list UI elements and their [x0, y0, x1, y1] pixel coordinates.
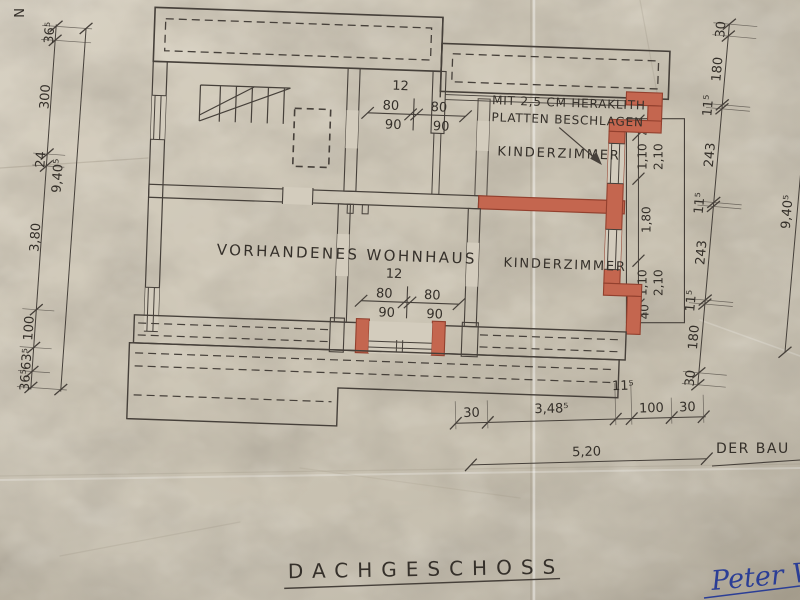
dim-left-total: 9,40⁵: [50, 158, 67, 193]
dim-right-1: 180: [709, 56, 726, 82]
dim-right-opening-180: 1,80: [639, 206, 653, 233]
dim-door-upper-90r: 90: [433, 119, 450, 135]
dim-right-2: 11⁵: [700, 94, 717, 117]
approval-label: DER BAU: [716, 441, 790, 457]
dim-left-3: 3,80: [27, 222, 44, 252]
dim-door-lower-80r: 80: [424, 288, 441, 304]
dim-door-upper-90l: 90: [385, 117, 402, 133]
dim-right-7: 180: [686, 324, 703, 350]
dim-left-4: 100: [21, 315, 38, 341]
drawing-title: DACHGESCHOSS: [288, 554, 565, 583]
dim-left-6: 36⁵: [18, 369, 34, 392]
dim-right-8: 30: [683, 369, 699, 387]
dim-right-3: 243: [702, 142, 719, 168]
dim-door-lower-12: 12: [385, 267, 402, 283]
dim-left-5: 63⁵: [19, 348, 35, 371]
new-pier-right: [431, 321, 445, 355]
dim-door-lower-90r: 90: [426, 307, 443, 323]
dim-bottom-total: 5,20: [572, 444, 601, 460]
dim-bottom-2: 11⁵: [612, 379, 634, 395]
dim-bottom-4: 30: [679, 400, 696, 415]
dim-bottom-0: 30: [463, 406, 480, 421]
dim-right-opening-210b: 2,10: [651, 269, 665, 296]
dim-right-opening-110a: 1,10: [635, 143, 649, 170]
dim-right-total: 9,40⁵: [779, 194, 797, 229]
dim-door-upper-12: 12: [392, 79, 409, 95]
door-opening-main-wall: [282, 187, 313, 205]
new-pier-left: [355, 319, 369, 353]
dim-right-0: 30: [713, 21, 729, 39]
dim-bottom-1: 3,48⁵: [534, 401, 569, 417]
balcony-door-opening: [368, 321, 432, 355]
dim-door-lower-80l: 80: [376, 286, 393, 302]
scanned-floor-plan: N: [0, 0, 800, 600]
dim-left-1: 300: [37, 84, 54, 110]
dim-right-6: 11⁵: [683, 289, 700, 312]
dim-door-upper-80r: 80: [430, 100, 447, 116]
dim-left-2: 24: [33, 151, 49, 169]
north-mark: N: [10, 8, 25, 18]
floor-plan-drawing: N: [0, 0, 800, 600]
window-left-lower: [144, 287, 160, 331]
dim-right-5: 243: [693, 240, 710, 266]
dim-bottom-3: 100: [639, 401, 664, 417]
dim-door-lower-90l: 90: [378, 305, 395, 321]
dim-right-opening-210a: 2,10: [651, 143, 665, 170]
dim-right-4: 11⁵: [692, 192, 709, 215]
dim-door-upper-80l: 80: [382, 98, 399, 114]
dim-left-0: 36⁵: [42, 22, 58, 45]
